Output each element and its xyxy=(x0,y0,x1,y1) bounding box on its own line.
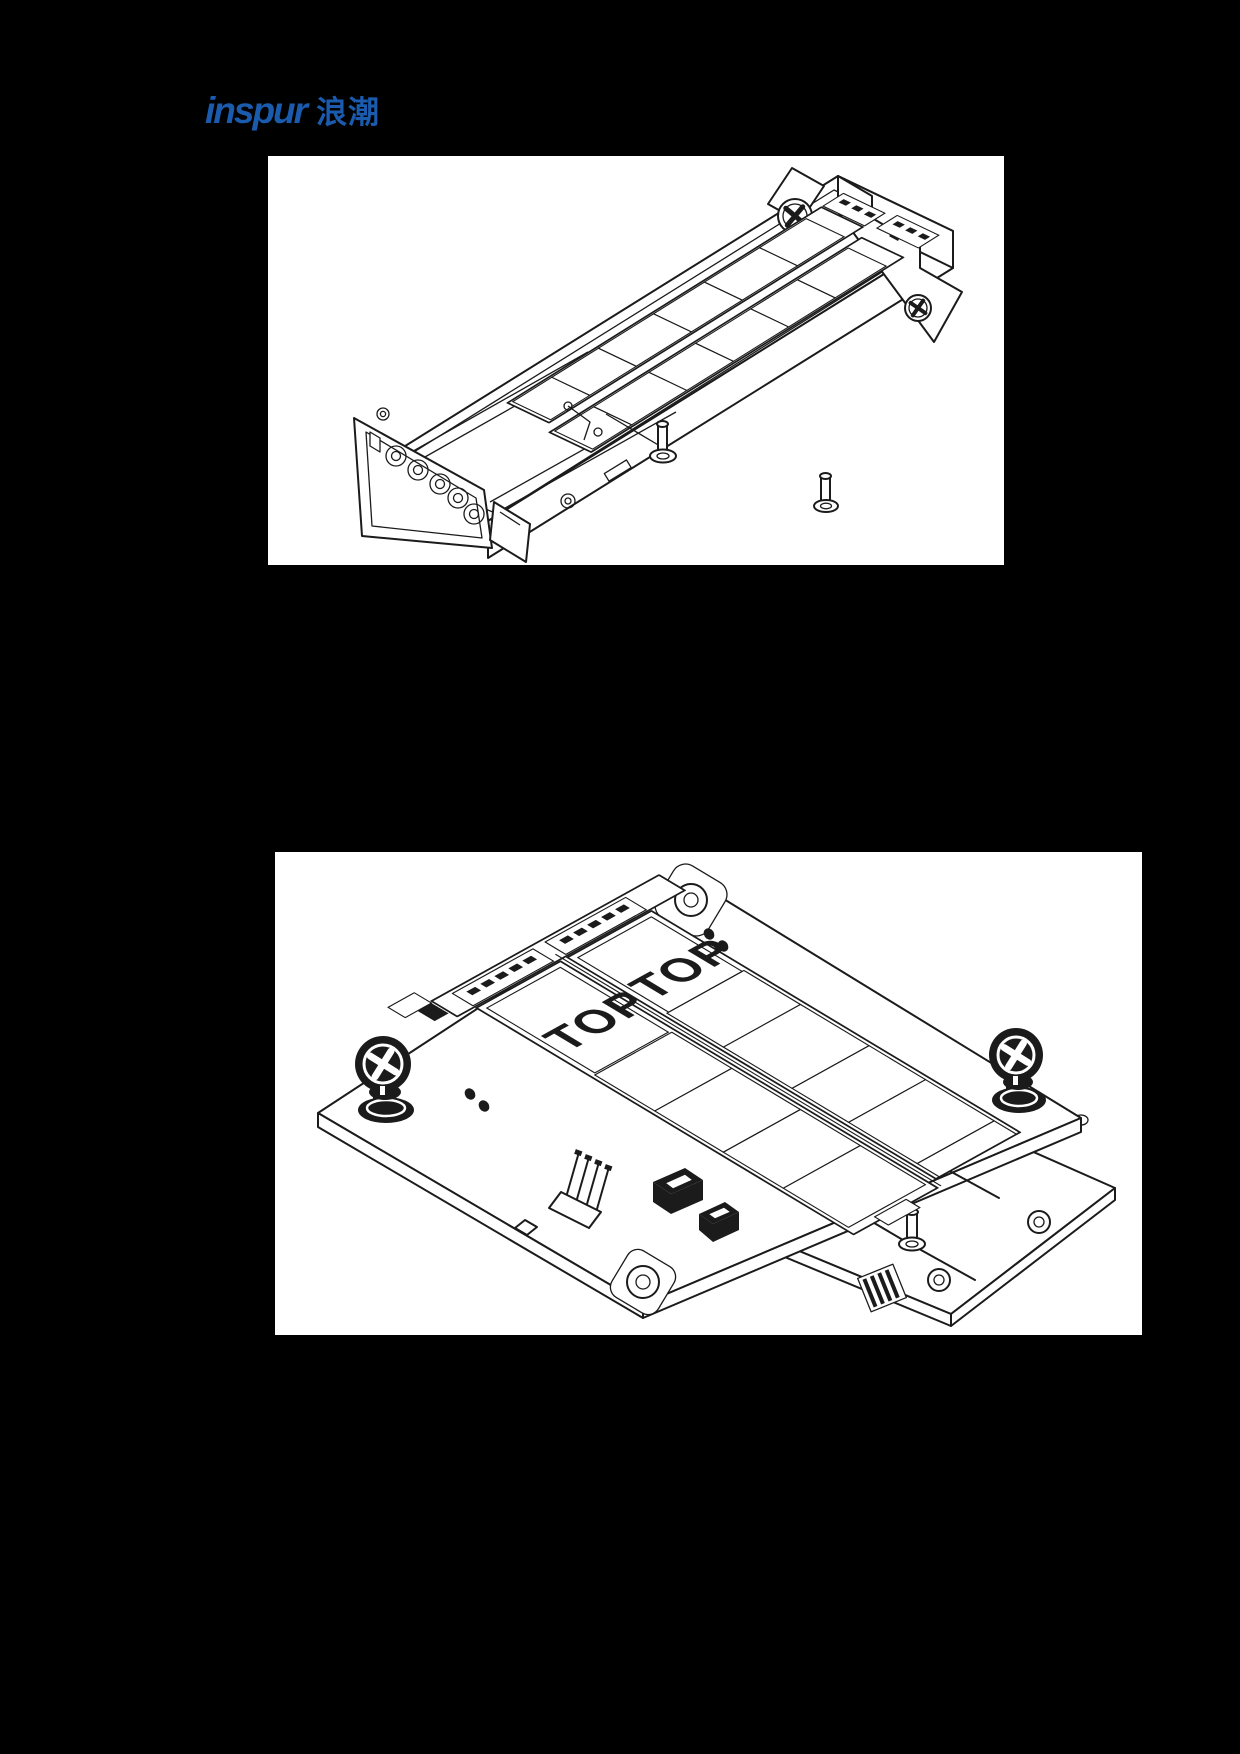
document-page: inspur 浪潮 xyxy=(0,0,1240,1754)
logo-brand-chinese-text: 浪潮 xyxy=(316,98,380,129)
thumbscrew-left-icon xyxy=(355,1036,414,1123)
drive-tray-drawing xyxy=(268,156,1004,565)
adapter-board-drawing: TOP TOP xyxy=(275,852,1142,1335)
logo-brand-text: inspur xyxy=(205,92,306,129)
figure-adapter-board: TOP TOP xyxy=(275,852,1142,1335)
inspur-logo: inspur 浪潮 xyxy=(205,92,380,129)
bracket-screw-icon xyxy=(905,295,931,321)
thumbscrew-right-icon xyxy=(989,1028,1046,1113)
figure-drive-tray xyxy=(268,156,1004,565)
standoff-pin-icon xyxy=(814,473,838,512)
